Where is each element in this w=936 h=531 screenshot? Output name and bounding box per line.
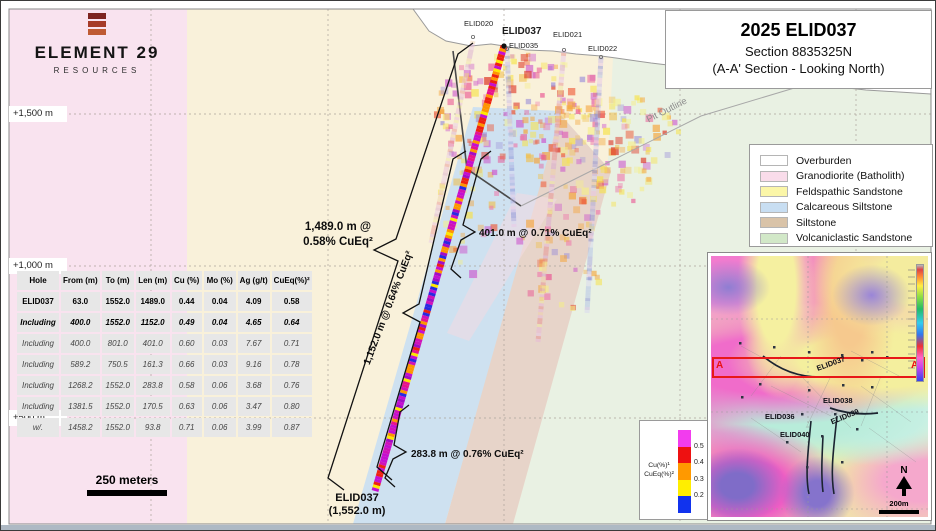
legend-label: Calcareous Siltstone <box>796 201 892 213</box>
table-cell: 1552.0 <box>102 376 134 395</box>
table-cell: 283.8 <box>136 376 170 395</box>
hole-label-elid022: ELID022 <box>588 44 617 53</box>
table-row: Including400.0801.0401.00.600.037.670.71 <box>17 334 312 353</box>
table-cell: 0.06 <box>204 397 236 416</box>
table-cell: 3.47 <box>238 397 270 416</box>
table-header: Len (m) <box>136 271 170 290</box>
table-header: Hole <box>17 271 59 290</box>
hole-label-elid035: ELID035 <box>509 41 538 50</box>
table-cell: 400.0 <box>61 334 100 353</box>
inset-colour-ramp <box>916 264 924 382</box>
legend-swatch <box>760 202 788 213</box>
legend-swatch <box>760 171 788 182</box>
table-cell: 0.87 <box>272 418 312 437</box>
table-cell: Including <box>17 376 59 395</box>
table-cell: 1552.0 <box>102 418 134 437</box>
table-cell: 0.78 <box>272 355 312 374</box>
table-row: Including589.2750.5161.30.660.039.160.78 <box>17 355 312 374</box>
scale-bar-line <box>87 490 167 496</box>
table-cell: 0.58 <box>272 292 312 311</box>
inset-heatmap: A A' ELID037ELID038ELID036ELID039ELID040… <box>711 256 928 517</box>
section-subtitle: Section 8835325N <box>666 44 931 59</box>
logo-name: ELEMENT 29 <box>15 43 179 63</box>
table-cell: Including <box>17 355 59 374</box>
section-orientation: (A-A' Section - Looking North) <box>666 61 931 76</box>
inset-scale-bar: 200m <box>876 499 922 514</box>
legend-label: Overburden <box>796 155 851 167</box>
legend-swatch <box>760 155 788 166</box>
hole-label-elid020: ELID020 <box>464 19 493 28</box>
table-cell: 801.0 <box>102 334 134 353</box>
annotation-end-of-hole: ELID037 (1,552.0 m) <box>318 492 396 518</box>
table-cell: 0.06 <box>204 376 236 395</box>
table-cell: 0.76 <box>272 376 312 395</box>
table-header: To (m) <box>102 271 134 290</box>
table-cell: 0.06 <box>204 418 236 437</box>
table-cell: 750.5 <box>102 355 134 374</box>
table-cell: 1489.0 <box>136 292 170 311</box>
table-cell: 4.65 <box>238 313 270 332</box>
table-cell: 1152.0 <box>136 313 170 332</box>
table-cell: 0.03 <box>204 334 236 353</box>
table-cell: w/. <box>17 418 59 437</box>
table-cell: 1381.5 <box>61 397 100 416</box>
section-title: 2025 ELID037 <box>666 20 931 41</box>
legend-item: Siltstone <box>760 215 932 231</box>
table-cell: 400.0 <box>61 313 100 332</box>
logo-tagline: RESOURCES <box>15 66 179 75</box>
table-cell: 0.63 <box>172 397 202 416</box>
assay-table-wrap: HoleFrom (m)To (m)Len (m)Cu (%)Mo (%)Ag … <box>15 269 314 439</box>
annotation-401-intercept: 401.0 m @ 0.71% CuEq² <box>479 228 592 239</box>
legend-item: Calcareous Siltstone <box>760 200 932 216</box>
table-cell: 0.60 <box>172 334 202 353</box>
table-cell: 3.68 <box>238 376 270 395</box>
inset-hole-label-elid040: ELID040 <box>780 430 810 439</box>
legend-label: Granodiorite (Batholith) <box>796 170 905 182</box>
table-header: CuEq(%)² <box>272 271 312 290</box>
bottom-edge-strip <box>1 525 936 531</box>
inset-hole-label-elid038: ELID038 <box>823 396 853 405</box>
table-row: w/.1458.21552.093.80.710.063.990.87 <box>17 418 312 437</box>
table-cell: Including <box>17 313 59 332</box>
table-cell: Including <box>17 397 59 416</box>
table-cell: 0.66 <box>172 355 202 374</box>
legend-item: Feldspathic Sandstone <box>760 184 932 200</box>
table-cell: 1268.2 <box>61 376 100 395</box>
assay-scale-tick: 0.4 <box>694 459 704 466</box>
table-row: Including1381.51552.0170.50.630.063.470.… <box>17 397 312 416</box>
inset-hole-label-elid036: ELID036 <box>765 412 795 421</box>
table-cell: 1552.0 <box>102 313 134 332</box>
table-cell: 0.64 <box>272 313 312 332</box>
legend-item: Volcaniclastic Sandstone <box>760 231 932 247</box>
table-cell: 0.49 <box>172 313 202 332</box>
legend-swatch <box>760 233 788 244</box>
table-header: Mo (%) <box>204 271 236 290</box>
hole-label-elid021: ELID021 <box>553 30 582 39</box>
geological-cross-section-figure: ELEMENT 29 RESOURCES 2025 ELID037 Sectio… <box>0 0 936 531</box>
table-cell: 1458.2 <box>61 418 100 437</box>
legend-label: Volcaniclastic Sandstone <box>796 232 912 244</box>
legend-label: Siltstone <box>796 217 836 229</box>
hole-label-elid037: ELID037 <box>502 26 541 37</box>
annotation-283-intercept: 283.8 m @ 0.76% CuEq² <box>411 449 524 460</box>
inset-plan-map: A A' ELID037ELID038ELID036ELID039ELID040… <box>707 252 932 521</box>
scale-bar: 250 meters <box>85 473 169 496</box>
table-cell: 170.5 <box>136 397 170 416</box>
table-header: Ag (g/t) <box>238 271 270 290</box>
table-cell: 161.3 <box>136 355 170 374</box>
legend-item: Granodiorite (Batholith) <box>760 169 932 185</box>
assay-colour-scale: Cu(%)¹ CuEq(%)² 0.50.40.30.2 <box>639 420 708 520</box>
table-cell: 4.09 <box>238 292 270 311</box>
table-cell: 1552.0 <box>102 397 134 416</box>
legend-item: Overburden <box>760 153 932 169</box>
north-arrow-icon <box>896 476 912 489</box>
north-arrow: N <box>892 465 916 496</box>
table-cell: 401.0 <box>136 334 170 353</box>
inset-scale-label: 200m <box>876 499 922 508</box>
north-label: N <box>892 465 916 476</box>
table-cell: 0.04 <box>204 313 236 332</box>
assay-scale-tick: 0.3 <box>694 476 704 483</box>
assay-scale-title: Cu(%)¹ CuEq(%)² <box>641 461 677 479</box>
section-marker-a: A <box>716 360 723 371</box>
table-header: Cu (%) <box>172 271 202 290</box>
table-cell: 9.16 <box>238 355 270 374</box>
table-cell: 0.80 <box>272 397 312 416</box>
assay-table: HoleFrom (m)To (m)Len (m)Cu (%)Mo (%)Ag … <box>15 269 314 439</box>
legend-swatch <box>760 217 788 228</box>
inset-scale-line <box>879 510 919 514</box>
table-header: From (m) <box>61 271 100 290</box>
table-cell: Including <box>17 334 59 353</box>
table-cell: 3.99 <box>238 418 270 437</box>
legend-swatch <box>760 186 788 197</box>
title-box: 2025 ELID037 Section 8835325N (A-A' Sect… <box>665 10 932 89</box>
table-row: Including400.01552.01152.00.490.044.650.… <box>17 313 312 332</box>
geology-legend: OverburdenGranodiorite (Batholith)Feldsp… <box>749 144 933 247</box>
elevation-label-1500: +1,500 m <box>9 106 67 122</box>
table-row: ELID03763.01552.01489.00.440.044.090.58 <box>17 292 312 311</box>
assay-scale-tick: 0.2 <box>694 492 704 499</box>
table-cell: 7.67 <box>238 334 270 353</box>
logo-bars-icon <box>15 13 179 35</box>
scale-bar-label: 250 meters <box>85 473 169 487</box>
table-cell: 1552.0 <box>102 292 134 311</box>
table-cell: ELID037 <box>17 292 59 311</box>
annotation-full-intercept: 1,489.0 m @ 0.58% CuEq² <box>293 220 383 250</box>
table-cell: 63.0 <box>61 292 100 311</box>
element29-logo: ELEMENT 29 RESOURCES <box>15 13 179 75</box>
table-cell: 0.44 <box>172 292 202 311</box>
table-cell: 0.04 <box>204 292 236 311</box>
assay-colour-bar <box>678 430 691 513</box>
table-cell: 93.8 <box>136 418 170 437</box>
table-cell: 589.2 <box>61 355 100 374</box>
table-row: Including1268.21552.0283.80.580.063.680.… <box>17 376 312 395</box>
table-cell: 0.03 <box>204 355 236 374</box>
table-cell: 0.58 <box>172 376 202 395</box>
table-cell: 0.71 <box>172 418 202 437</box>
legend-label: Feldspathic Sandstone <box>796 186 903 198</box>
table-cell: 0.71 <box>272 334 312 353</box>
assay-scale-tick: 0.5 <box>694 443 704 450</box>
